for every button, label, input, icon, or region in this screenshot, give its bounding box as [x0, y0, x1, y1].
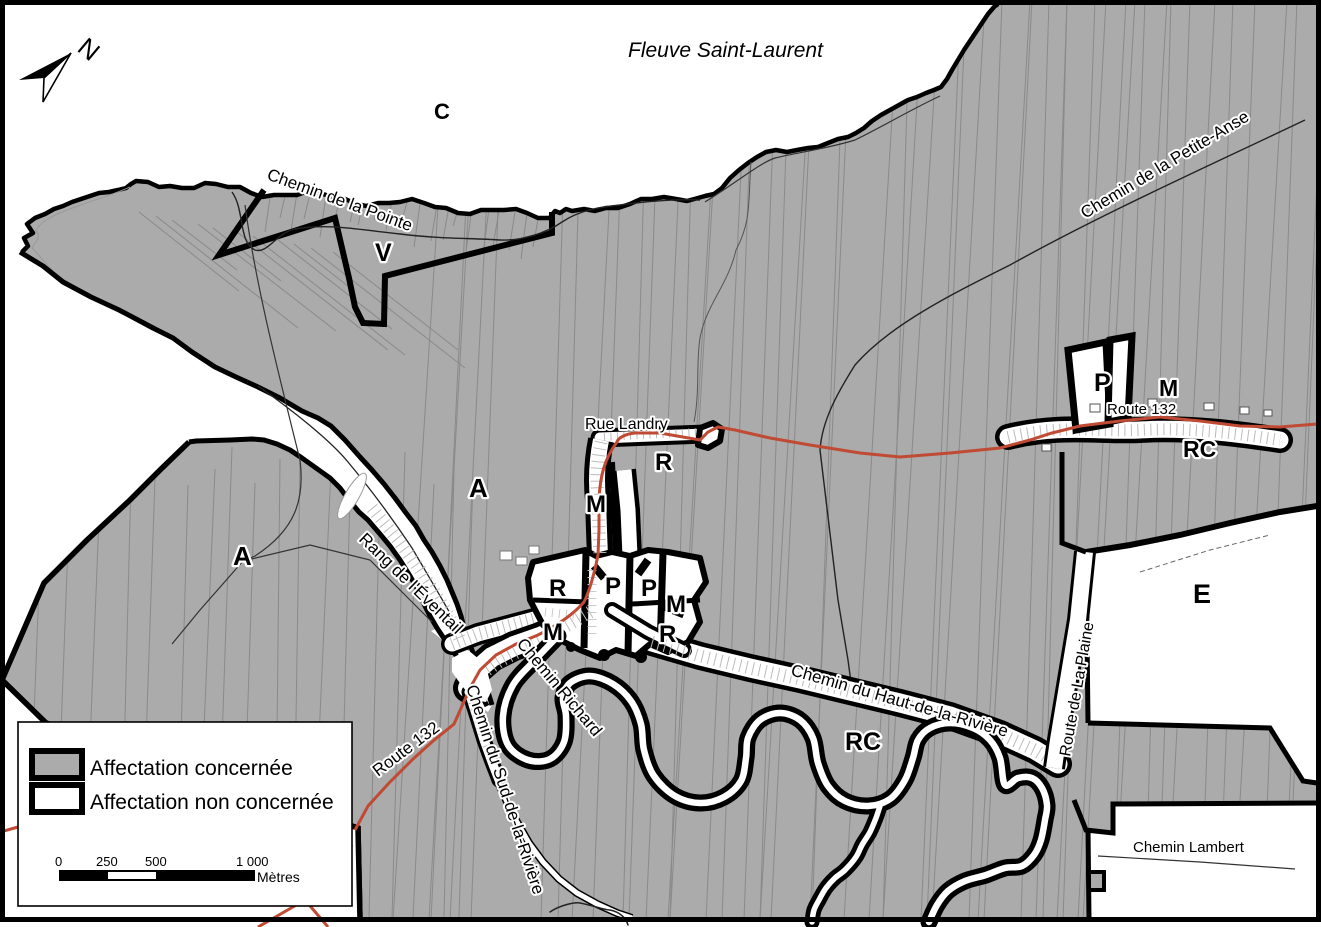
svg-text:500: 500 [145, 854, 167, 869]
svg-text:Chemin Lambert: Chemin Lambert [1133, 839, 1245, 856]
svg-text:250: 250 [96, 854, 118, 869]
svg-text:E: E [1193, 579, 1211, 609]
svg-text:M: M [543, 619, 563, 646]
svg-text:Mètres: Mètres [257, 869, 300, 885]
svg-text:M: M [586, 491, 606, 518]
svg-text:Affectation concernée: Affectation concernée [90, 757, 293, 780]
svg-text:V: V [375, 239, 392, 267]
svg-text:C: C [434, 99, 450, 124]
svg-text:RC: RC [845, 728, 881, 756]
svg-text:M: M [666, 591, 686, 618]
svg-text:Route 132: Route 132 [1107, 401, 1176, 418]
svg-text:R: R [549, 575, 566, 602]
svg-text:P: P [1094, 369, 1111, 397]
svg-text:R: R [655, 449, 672, 476]
svg-text:RC: RC [1183, 436, 1216, 462]
svg-text:A: A [233, 541, 252, 571]
svg-text:P: P [641, 575, 657, 602]
svg-text:A: A [469, 473, 488, 503]
svg-text:Affectation non concernée: Affectation non concernée [90, 791, 334, 814]
svg-text:1 000: 1 000 [236, 854, 269, 869]
svg-text:Fleuve Saint-Laurent: Fleuve Saint-Laurent [628, 39, 824, 62]
svg-text:Rue Landry: Rue Landry [585, 416, 668, 433]
svg-text:P: P [605, 573, 621, 600]
svg-text:0: 0 [55, 854, 62, 869]
svg-text:R: R [659, 621, 676, 648]
svg-text:M: M [1159, 375, 1178, 401]
